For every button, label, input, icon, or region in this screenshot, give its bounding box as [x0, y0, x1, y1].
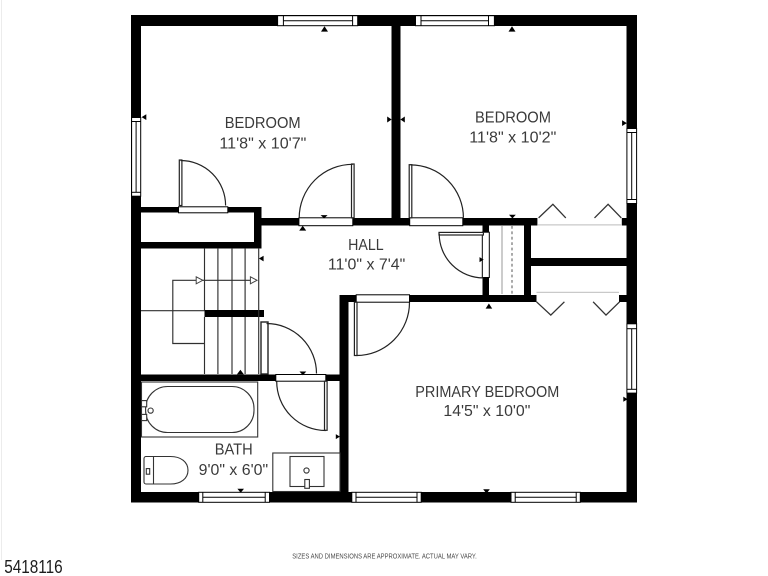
- svg-text:11'8" x 10'2": 11'8" x 10'2": [469, 130, 556, 147]
- svg-text:PRIMARY BEDROOM: PRIMARY BEDROOM: [415, 384, 559, 401]
- svg-text:5418116: 5418116: [4, 556, 62, 576]
- svg-text:11'0" x 7'4": 11'0" x 7'4": [328, 256, 406, 273]
- svg-text:SIZES AND DIMENSIONS ARE APPRO: SIZES AND DIMENSIONS ARE APPROXIMATE. AC…: [292, 551, 477, 560]
- svg-text:HALL: HALL: [348, 237, 384, 254]
- svg-text:9'0" x 6'0": 9'0" x 6'0": [199, 462, 269, 479]
- svg-text:14'5" x 10'0": 14'5" x 10'0": [443, 403, 530, 420]
- svg-text:BEDROOM: BEDROOM: [475, 109, 551, 126]
- svg-text:BATH: BATH: [215, 442, 253, 459]
- svg-text:11'8" x 10'7": 11'8" x 10'7": [219, 136, 306, 153]
- svg-text:BEDROOM: BEDROOM: [225, 115, 301, 132]
